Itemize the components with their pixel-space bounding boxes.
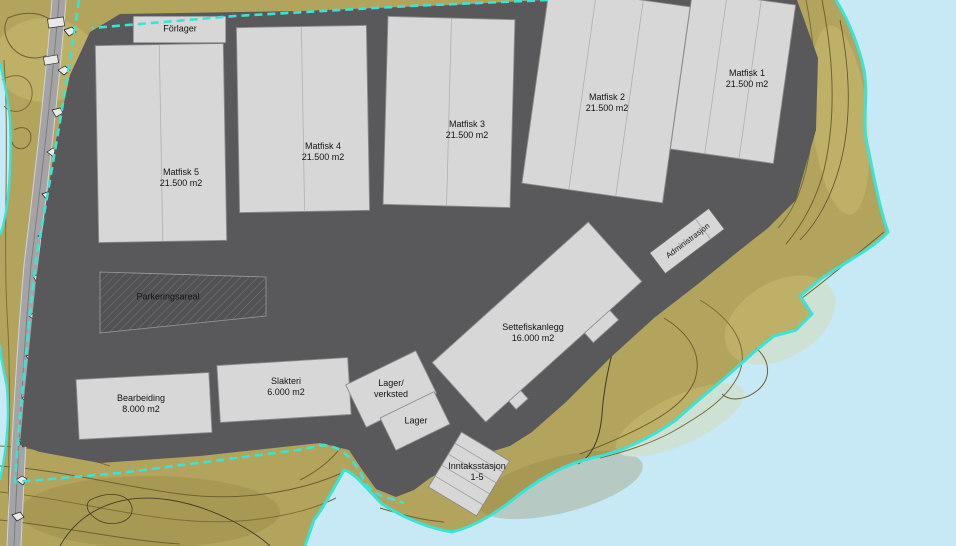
building-matfisk-5 bbox=[95, 43, 226, 242]
building-matfisk-3 bbox=[383, 16, 515, 207]
building-matfisk-4 bbox=[236, 25, 369, 212]
building-bearbeiding bbox=[76, 373, 212, 440]
site-plan-canvas bbox=[0, 0, 956, 546]
site-plan-map: Förlager Matfisk 521.500 m2 Matfisk 421.… bbox=[0, 0, 956, 546]
building-slakteri bbox=[217, 358, 351, 423]
building-matfisk-1 bbox=[670, 0, 795, 163]
road-marking bbox=[48, 17, 65, 28]
building-matfisk-2 bbox=[522, 0, 690, 203]
